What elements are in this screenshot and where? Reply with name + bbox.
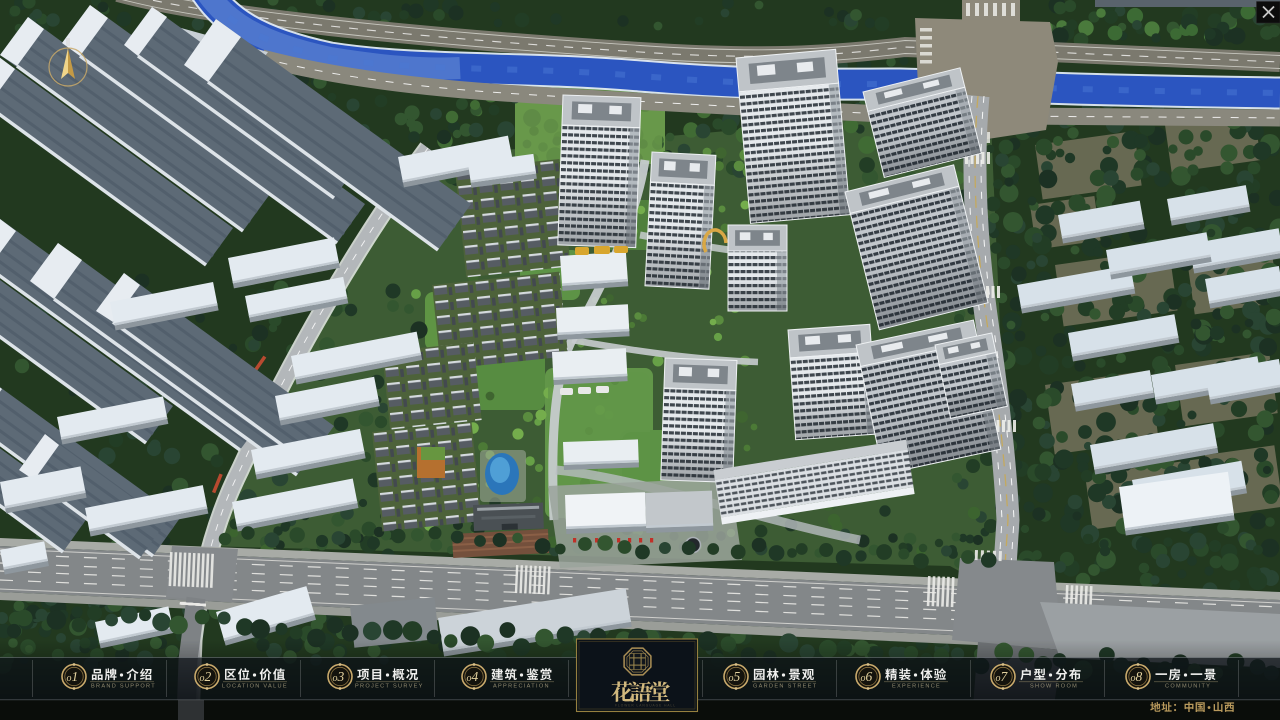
svg-text:LOCATION VALUE: LOCATION VALUE xyxy=(222,684,288,690)
svg-text:GARDEN STREET: GARDEN STREET xyxy=(753,684,817,690)
svg-text:APPRECIATION: APPRECIATION xyxy=(493,684,550,690)
svg-text:EXPERIENCE: EXPERIENCE xyxy=(892,684,941,690)
svg-text:FLOWER LANGUAGE HALL: FLOWER LANGUAGE HALL xyxy=(615,704,676,708)
svg-text:PROJECT SURVEY: PROJECT SURVEY xyxy=(355,684,424,690)
svg-text:SHOW ROOM: SHOW ROOM xyxy=(1030,684,1078,690)
svg-text:COMMUNITY: COMMUNITY xyxy=(1165,684,1211,690)
svg-text:BRAND SUPPORT: BRAND SUPPORT xyxy=(91,684,156,690)
